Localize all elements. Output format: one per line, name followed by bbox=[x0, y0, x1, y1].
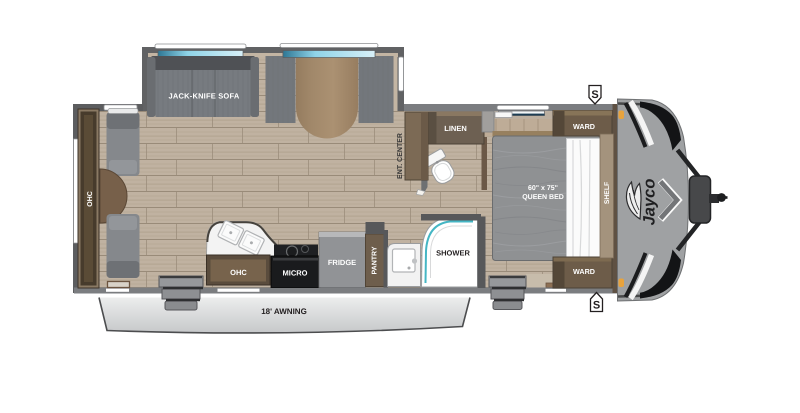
svg-text:SHOWER: SHOWER bbox=[436, 249, 470, 258]
svg-text:FRIDGE: FRIDGE bbox=[328, 258, 356, 267]
svg-text:OHC: OHC bbox=[87, 191, 94, 207]
svg-text:S: S bbox=[593, 300, 600, 312]
svg-text:Jayco: Jayco bbox=[640, 179, 658, 226]
svg-text:MICRO: MICRO bbox=[283, 269, 308, 278]
svg-text:S: S bbox=[591, 89, 598, 101]
svg-text:18' AWNING: 18' AWNING bbox=[261, 307, 307, 316]
svg-text:ENT. CENTER: ENT. CENTER bbox=[397, 133, 404, 179]
svg-text:LINEN: LINEN bbox=[444, 124, 467, 133]
svg-text:QUEEN BED: QUEEN BED bbox=[522, 194, 564, 201]
svg-text:WARD: WARD bbox=[573, 267, 595, 276]
svg-text:OHC: OHC bbox=[230, 268, 247, 277]
svg-text:PANTRY: PANTRY bbox=[372, 246, 379, 274]
svg-text:JACK-KNIFE SOFA: JACK-KNIFE SOFA bbox=[169, 92, 240, 101]
svg-text:60" x 75": 60" x 75" bbox=[528, 185, 558, 192]
svg-text:WARD: WARD bbox=[573, 122, 595, 131]
svg-text:SHELF: SHELF bbox=[604, 182, 611, 204]
